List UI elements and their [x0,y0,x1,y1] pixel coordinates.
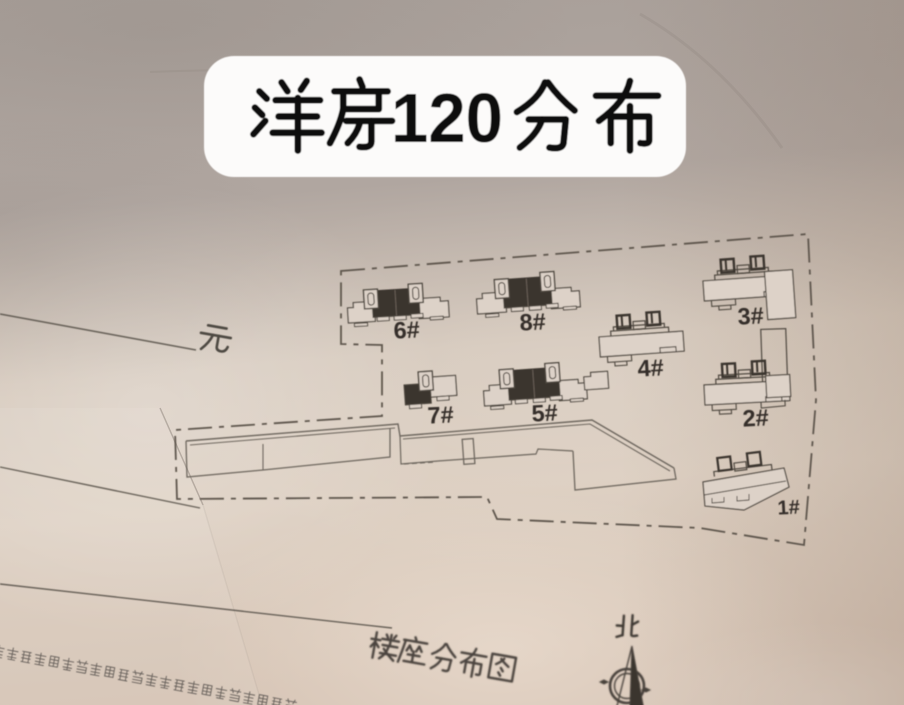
svg-text:8#: 8# [519,308,546,335]
svg-text:4#: 4# [637,354,664,381]
svg-text:7#: 7# [427,401,454,428]
svg-text:3#: 3# [737,302,764,329]
svg-text:120: 120 [391,79,503,157]
svg-text:6#: 6# [393,316,420,343]
svg-text:1#: 1# [777,496,800,519]
svg-text:5#: 5# [531,399,558,426]
svg-text:2#: 2# [742,404,769,431]
